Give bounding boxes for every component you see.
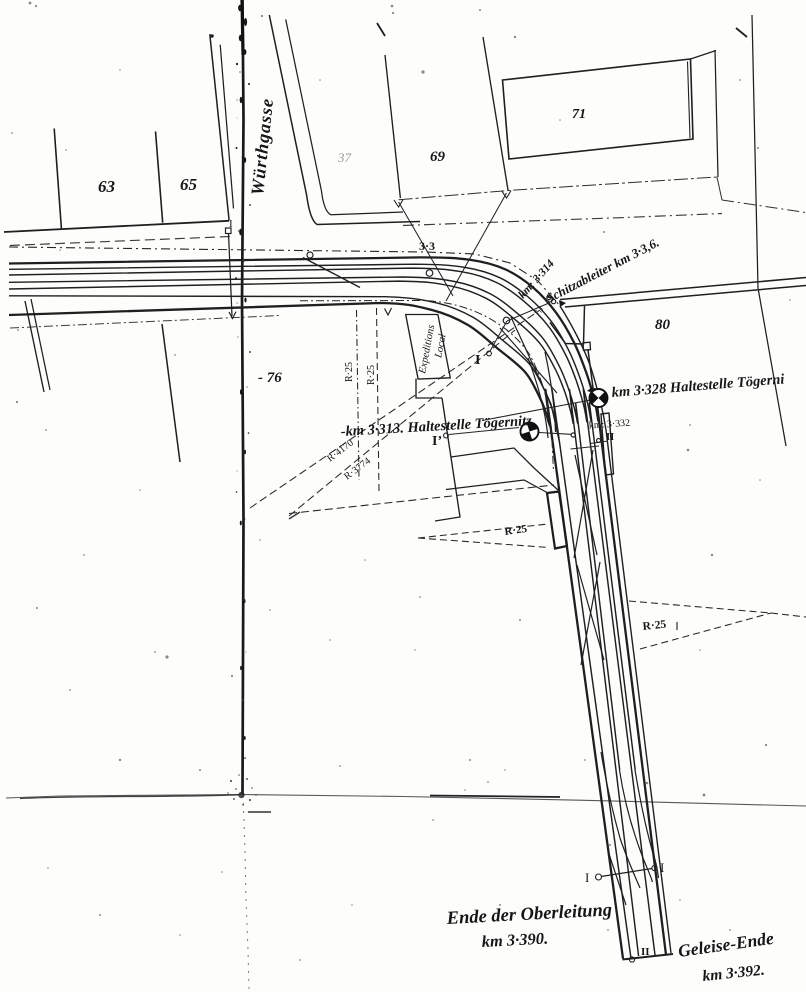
svg-text:37: 37 bbox=[337, 150, 352, 165]
svg-text:II: II bbox=[641, 946, 650, 958]
svg-text:65: 65 bbox=[180, 175, 198, 194]
svg-text:I: I bbox=[475, 353, 480, 368]
svg-text:- 76: - 76 bbox=[258, 370, 282, 386]
svg-text:I’: I’ bbox=[432, 434, 442, 449]
svg-text:3·3: 3·3 bbox=[419, 239, 435, 253]
svg-text:R·25: R·25 bbox=[344, 362, 355, 382]
svg-text:I: I bbox=[660, 860, 664, 875]
svg-text:R·25: R·25 bbox=[642, 619, 667, 633]
svg-text:I: I bbox=[585, 870, 589, 885]
svg-text:71: 71 bbox=[572, 107, 586, 122]
svg-text:63: 63 bbox=[98, 177, 116, 196]
svg-text:69: 69 bbox=[430, 149, 446, 165]
svg-text:80: 80 bbox=[655, 317, 671, 333]
svg-text:km 3·390.: km 3·390. bbox=[481, 929, 548, 951]
svg-text:R·25: R·25 bbox=[366, 365, 377, 385]
